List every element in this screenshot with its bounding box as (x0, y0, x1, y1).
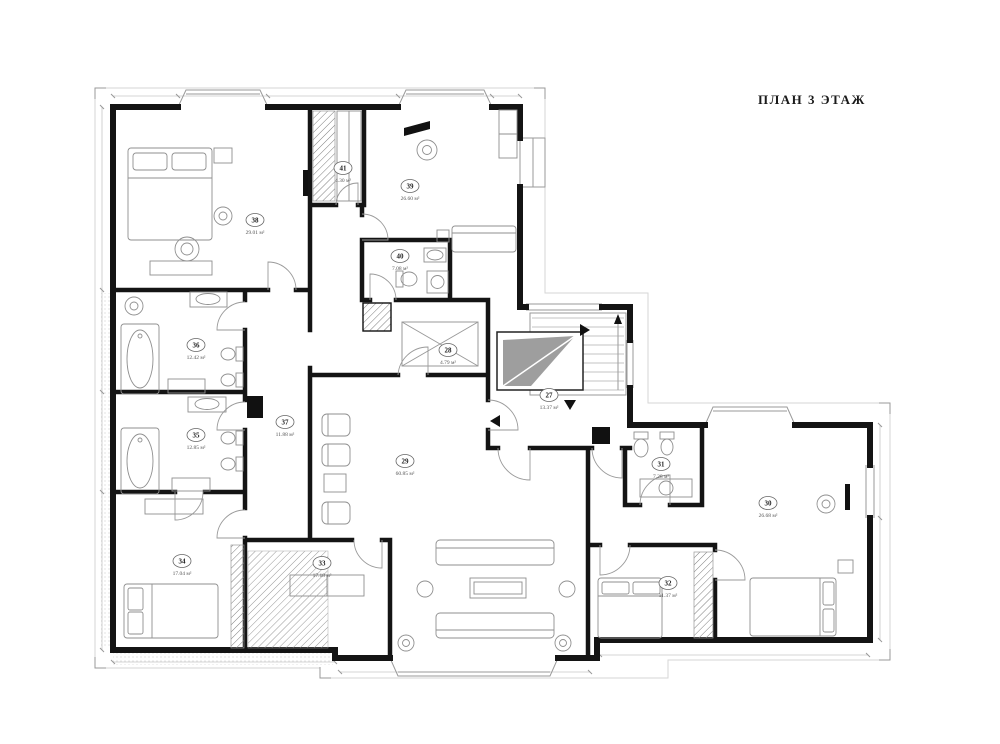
room-38-furniture (128, 148, 308, 275)
toilet-tank (236, 347, 243, 361)
cabinet (172, 478, 210, 491)
svg-text:11.88 м²: 11.88 м² (276, 432, 295, 438)
bed (598, 578, 662, 638)
svg-text:39: 39 (407, 183, 415, 191)
svg-text:13.37 м²: 13.37 м² (540, 405, 559, 411)
pillow (602, 582, 629, 594)
room-label-33: 3317.18 м² (313, 557, 332, 580)
toilet (221, 348, 235, 360)
dimension-lines (100, 94, 882, 674)
wardrobe (694, 552, 713, 638)
side-table (559, 581, 575, 597)
svg-text:29.01 м²: 29.01 м² (246, 230, 265, 236)
door-stair-hall (488, 400, 518, 430)
vanity-counter (640, 479, 692, 497)
svg-text:32: 32 (665, 580, 673, 588)
door-room36 (217, 302, 245, 330)
plant (125, 297, 143, 315)
armchair (322, 502, 350, 524)
vestibule-shaft (592, 427, 610, 444)
floor-plan: 2713.37 м²284.79 м²2960.85 м²3026.68 м²3… (0, 0, 1000, 744)
svg-text:34: 34 (179, 558, 187, 566)
svg-text:17.18 м²: 17.18 м² (313, 573, 332, 579)
armchair (175, 237, 199, 261)
room-label-32: 3211.37 м² (659, 577, 678, 600)
pillow (128, 612, 143, 634)
wardrobe (231, 545, 244, 648)
svg-text:4.79 м²: 4.79 м² (440, 360, 456, 366)
room-label-38: 3829.01 м² (246, 214, 265, 237)
window-stair-side (627, 340, 633, 388)
pillow (128, 588, 143, 610)
door-room41 (336, 183, 358, 205)
nightstand (838, 560, 853, 573)
bay-window-bottom (390, 658, 558, 676)
toilet (634, 439, 648, 457)
armchair (322, 444, 350, 466)
door-room34 (175, 492, 203, 520)
door-room34-corridor (217, 510, 245, 538)
nightstand (214, 148, 232, 163)
corner-mark (95, 88, 890, 678)
side-table (417, 581, 433, 597)
sofa (436, 613, 554, 638)
toilet (221, 432, 235, 444)
room-label-34: 3417.04 м² (173, 555, 192, 578)
plant (398, 635, 414, 651)
svg-text:17.04 м²: 17.04 м² (173, 571, 192, 577)
room-label-31: 317.28 м² (652, 458, 670, 481)
svg-text:26.60 м²: 26.60 м² (401, 196, 420, 202)
sofa (436, 540, 554, 565)
bay-window-room39 (398, 90, 492, 107)
svg-text:7.28 м²: 7.28 м² (653, 474, 669, 480)
svg-text:30: 30 (765, 500, 773, 508)
sheet-title: ПЛАН 3 ЭТАЖ (758, 92, 866, 107)
terrace-stipple-bottom (113, 653, 333, 665)
terrace-stipple-left (101, 293, 111, 648)
svg-text:29: 29 (402, 458, 410, 466)
room-39-furniture (404, 110, 517, 252)
svg-text:35: 35 (193, 432, 201, 440)
svg-text:12.85 м²: 12.85 м² (187, 445, 206, 451)
plant (555, 635, 571, 651)
room-label-27: 2713.37 м² (540, 389, 559, 412)
tv-icon (845, 484, 850, 510)
room-35-fixtures (121, 397, 243, 494)
svg-text:38: 38 (252, 217, 260, 225)
pillow (133, 153, 167, 170)
toilet-tank (236, 373, 243, 387)
door-room39 (362, 214, 388, 240)
armchair (817, 495, 835, 513)
room-label-36: 3612.42 м² (187, 339, 206, 362)
side-table (324, 474, 346, 492)
drawing-sheet: 2713.37 м²284.79 м²2960.85 м²3026.68 м²3… (0, 0, 1000, 744)
room-33-furniture (248, 551, 364, 648)
bench (150, 261, 212, 275)
window-room30-side (866, 465, 874, 518)
tv-icon (303, 170, 308, 196)
column-pilaster (247, 396, 263, 418)
svg-text:37: 37 (282, 419, 290, 427)
door-room38 (268, 262, 296, 290)
pillow (823, 609, 834, 632)
bidet-tank (660, 432, 674, 439)
door-room33 (354, 540, 382, 568)
room-label-30: 3026.68 м² (759, 497, 778, 520)
exterior-walls (113, 107, 870, 658)
marker-triangle (580, 324, 590, 336)
door-room35 (217, 402, 245, 430)
room-label-37: 3711.88 м² (276, 416, 295, 439)
chair (417, 140, 437, 160)
room-41-wardrobe (313, 111, 361, 201)
svg-text:60.85 м²: 60.85 м² (396, 471, 415, 477)
toilet-tank (396, 271, 403, 287)
door-vestibule-hall (592, 448, 622, 478)
room-28-shafts (363, 303, 478, 366)
svg-text:40: 40 (397, 253, 405, 261)
bay-window-room30 (705, 407, 795, 425)
toilet-tank (634, 432, 648, 439)
bidet (661, 439, 673, 455)
pillow (823, 582, 834, 605)
window-stair-top (526, 304, 602, 310)
coffee-table (470, 578, 526, 598)
couch (452, 226, 516, 252)
svg-text:11.37 м²: 11.37 м² (659, 593, 678, 599)
bed (128, 148, 212, 240)
svg-text:26.68 м²: 26.68 м² (759, 513, 778, 519)
toilet-tank (236, 431, 243, 445)
reference-outline (95, 88, 890, 678)
svg-text:36: 36 (193, 342, 201, 350)
door-room32-room30 (715, 550, 745, 580)
marker-triangle (490, 415, 500, 427)
bidet (221, 458, 235, 470)
door-room32 (600, 545, 630, 575)
room-label-40: 407.08 м² (391, 250, 409, 273)
bidet (221, 374, 235, 386)
svg-text:28: 28 (445, 347, 453, 355)
svg-text:27: 27 (546, 392, 554, 400)
svg-text:41: 41 (340, 165, 348, 173)
door-room40 (370, 274, 396, 300)
armchair (322, 414, 350, 436)
room-label-29: 2960.85 м² (396, 455, 415, 478)
pillow (633, 582, 660, 594)
pillow (172, 153, 206, 170)
room-labels: 2713.37 м²284.79 м²2960.85 м²3026.68 м²3… (173, 162, 778, 600)
bay-window-room38 (178, 90, 268, 107)
room-label-35: 3512.85 м² (187, 429, 206, 452)
room-36-fixtures (121, 292, 243, 394)
marker-triangle (564, 400, 576, 410)
doors (175, 183, 745, 580)
svg-text:31: 31 (658, 461, 666, 469)
window-room39-side (520, 138, 545, 187)
svg-text:4.30 м²: 4.30 м² (335, 178, 351, 184)
tv-icon (404, 121, 430, 136)
svg-text:33: 33 (319, 560, 327, 568)
room-32-furniture (598, 552, 713, 638)
plant (214, 207, 232, 225)
bed (124, 584, 218, 638)
toilet-tank (236, 457, 243, 471)
room-label-39: 3926.60 м² (401, 180, 420, 203)
svg-text:12.42 м²: 12.42 м² (187, 355, 206, 361)
washing-machine (427, 271, 448, 293)
room-label-41: 414.30 м² (334, 162, 352, 185)
svg-text:7.08 м²: 7.08 м² (392, 266, 408, 272)
door-vestibule-livingroom (498, 448, 530, 480)
room-label-28: 284.79 м² (439, 344, 457, 367)
